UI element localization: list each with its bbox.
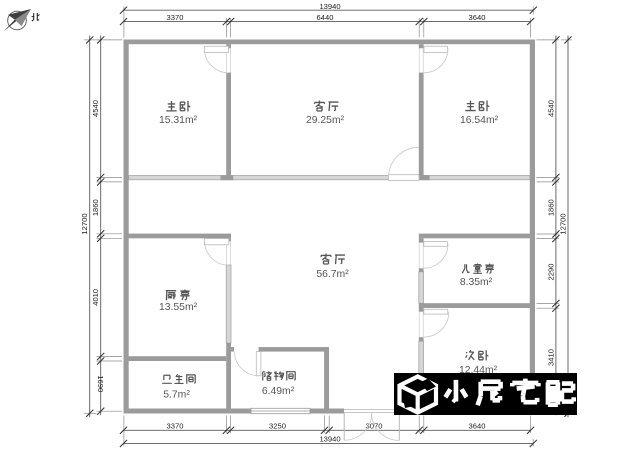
- svg-text:56.7m²: 56.7m²: [316, 269, 349, 280]
- svg-text:5.7m²: 5.7m²: [163, 390, 190, 401]
- svg-text:12700: 12700: [80, 213, 89, 234]
- svg-text:13940: 13940: [319, 435, 340, 444]
- svg-text:13.55m²: 13.55m²: [159, 302, 198, 313]
- svg-text:16.54m²: 16.54m²: [460, 115, 499, 126]
- svg-text:4540: 4540: [91, 100, 100, 117]
- svg-text:4010: 4010: [91, 289, 100, 306]
- svg-text:15.31m²: 15.31m²: [159, 115, 198, 126]
- svg-text:2290: 2290: [546, 264, 555, 281]
- svg-text:3370: 3370: [167, 422, 184, 431]
- svg-text:4540: 4540: [546, 100, 555, 117]
- svg-text:29.25m²: 29.25m²: [306, 115, 345, 126]
- svg-text:13940: 13940: [319, 2, 340, 11]
- svg-text:3640: 3640: [469, 13, 486, 22]
- svg-text:6440: 6440: [317, 13, 334, 22]
- svg-text:1690: 1690: [96, 375, 105, 392]
- svg-text:12700: 12700: [558, 213, 567, 234]
- svg-text:1860: 1860: [546, 199, 555, 216]
- svg-text:8.35m²: 8.35m²: [460, 277, 493, 288]
- svg-text:6.49m²: 6.49m²: [262, 386, 295, 397]
- svg-text:3640: 3640: [469, 422, 486, 431]
- svg-text:3410: 3410: [546, 349, 555, 366]
- svg-text:3250: 3250: [269, 422, 286, 431]
- svg-text:1860: 1860: [91, 199, 100, 216]
- svg-text:3370: 3370: [167, 13, 184, 22]
